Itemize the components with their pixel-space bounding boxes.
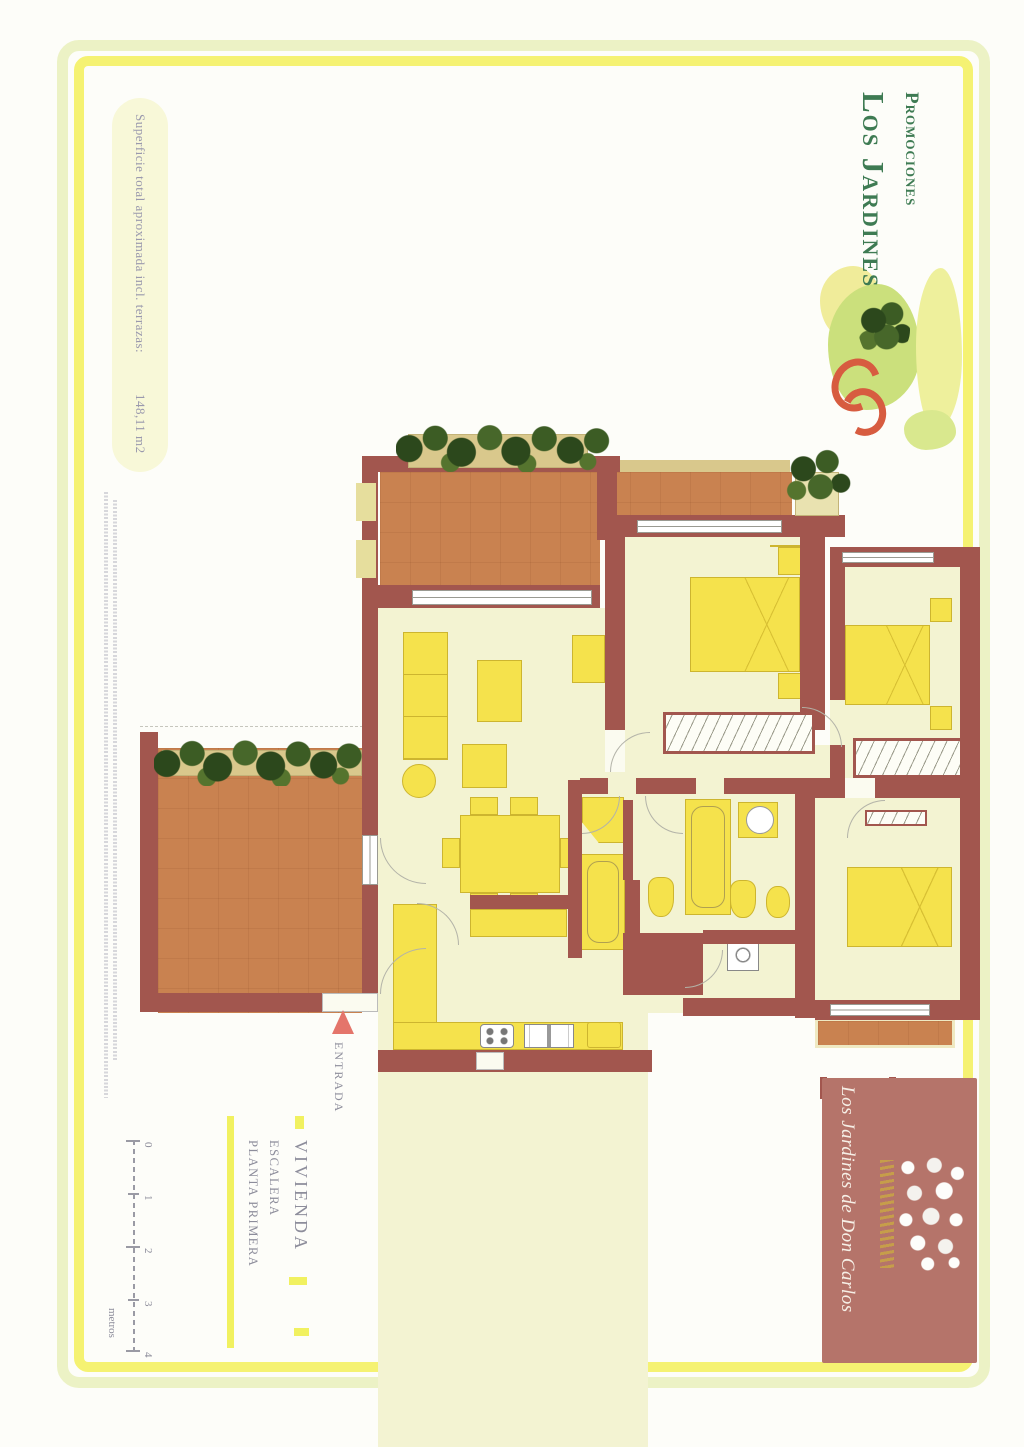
wall [636,778,696,794]
scale-tick-label: 4 [142,1352,154,1358]
brand-line2: Los Jardines [850,92,896,464]
scale-tick [128,1193,139,1195]
wall [703,930,795,944]
dimension-line [140,726,368,727]
bathtub-inner [691,806,725,908]
wall [605,515,625,730]
hedge-plants [154,736,366,786]
ledge-planter-strip [600,460,790,472]
fridge-icon [587,1022,621,1048]
floor-plan [140,420,982,1102]
wall [795,778,815,1018]
kitchen-counter-top [470,909,567,937]
entrance-label: ENTRADA [331,1042,346,1113]
toilet-icon [730,880,756,918]
tv-cabinet [572,635,605,683]
legend-escalera: ESCALERA [263,1140,284,1355]
window [637,520,782,533]
wall-pilaster [356,483,376,521]
hedge-plants [396,420,614,472]
terrace-door [362,835,378,885]
scale-tick [126,1246,140,1248]
scale-tick-label: 1 [142,1195,154,1201]
brand-logo: Promociones Los Jardines [830,92,924,464]
wall-pilaster [356,540,376,578]
wall [362,885,378,993]
brand-line1: Promociones [898,92,924,464]
brochure-page: Superficie total aproximada incl. terraz… [0,0,1024,1447]
surface-note-pill: Superficie total aproximada incl. terraz… [112,98,168,472]
wardrobe [663,712,815,754]
window [842,552,934,563]
scale-tick-label: 3 [142,1301,154,1307]
sofa [403,632,448,760]
kitchen-door-opening [476,1052,504,1070]
hob-icon [480,1024,514,1048]
wall [470,895,575,909]
wall [800,515,825,730]
closet-line [770,545,800,547]
wall [140,993,322,1012]
wall [683,998,795,1016]
dining-chair [510,797,538,815]
legend-vivienda: VIVIENDA [288,1140,314,1355]
entrance-arrow-icon [332,1010,354,1034]
double-bed [847,867,952,947]
nightstand [778,673,802,699]
double-bed [845,625,930,705]
tree-foliage-icon [898,1156,964,1272]
scale-unit-label: metros [106,1308,118,1338]
round-table [402,764,436,798]
wall [623,800,633,880]
wall [830,567,845,700]
bathtub-icon [581,854,625,950]
legend-planta: PLANTA PRIMERA [242,1140,263,1355]
window [412,590,592,605]
toilet-icon [648,877,674,917]
project-name-box: Los Jardines de Don Carlos [822,1078,977,1363]
armchair [462,744,507,788]
wall [580,778,608,794]
terrace-left-floor [158,748,362,1013]
scale-tick-label: 0 [142,1142,154,1148]
bathtub-icon [685,799,731,915]
nightstand [778,547,802,575]
coffee-table [477,660,522,722]
wall [830,745,845,778]
scale-tick [128,1299,139,1301]
project-name: Los Jardines de Don Carlos [836,1086,858,1313]
dining-chair [470,797,498,815]
bathtub-inner [587,861,619,943]
wall [960,547,980,1018]
surface-note-label: Superficie total aproximada incl. terraz… [132,114,148,353]
door-opening [845,778,875,798]
legend-labels: VIVIENDA ESCALERA PLANTA PRIMERA [238,1140,314,1355]
window [830,1004,930,1016]
wall [815,778,980,798]
nightstand [930,598,952,622]
bidet-icon [766,886,790,918]
nightstand [930,706,952,730]
dining-table [460,815,560,893]
legend-dash [295,1116,304,1129]
scale-bar: 0 1 2 3 4 metros [104,1132,158,1364]
sink-icon [524,1024,574,1048]
scale-tick [126,1140,140,1142]
wall [378,1050,652,1072]
scale-tick [126,1350,140,1352]
double-bed [690,577,800,672]
tree-trunk-icon [880,1160,894,1268]
scale-tick-label: 2 [142,1248,154,1254]
dining-chair [442,838,460,868]
bedroom3-balcony [815,1018,955,1048]
fine-print-column-2 [113,500,117,1060]
wall [568,780,582,958]
wardrobe [853,738,970,778]
washbasin-icon [746,806,774,834]
legend-separator-line [227,1116,234,1348]
fine-print-column-1 [104,492,108,1098]
